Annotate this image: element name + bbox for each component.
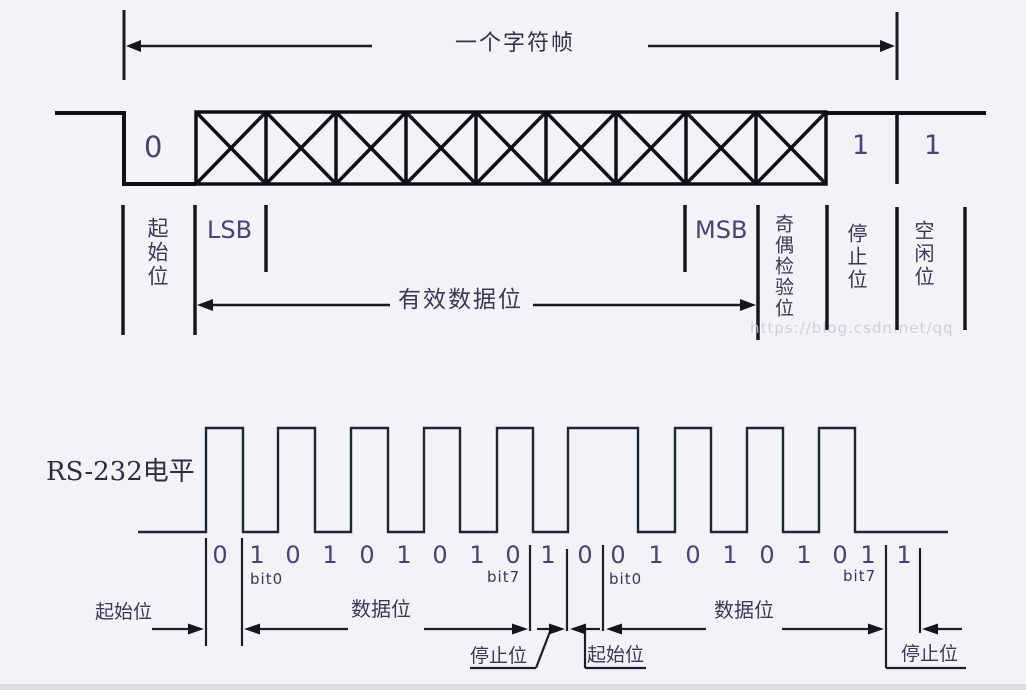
frame1-data-annotation: 数据位: [351, 599, 411, 620]
bit-value: 1: [791, 541, 817, 569]
bit-value: 1: [855, 541, 881, 569]
uart-frame-format-diagram: 一个字符帧 0 1 1 起始位 LSB MSB 奇偶检验位 停止位 空闲位 有效…: [0, 0, 1026, 690]
rs232-level-label: RS-232电平: [46, 459, 195, 486]
data-bit-boxes: [196, 112, 826, 184]
bit-value: 0: [280, 541, 306, 569]
right-arrowhead: [880, 40, 895, 52]
lsb-label: LSB: [207, 218, 252, 243]
idle-bit-field-label: 空闲位: [912, 220, 933, 289]
msb-label: MSB: [695, 218, 747, 243]
bit-value: 1: [535, 541, 561, 569]
bit-index-label: bit7: [843, 567, 876, 585]
frame1-start-annotation: 起始位: [95, 603, 152, 623]
bit-value: 1: [391, 541, 417, 569]
bit-index-label: bit0: [250, 570, 283, 588]
bit-index-label: bit7: [487, 568, 520, 586]
start-bit-value: 0: [144, 132, 162, 162]
bit-value: 0: [754, 541, 780, 569]
bit-value: 0: [572, 541, 598, 569]
bit-value: 0: [207, 541, 233, 569]
annotation-dimension-lines: [152, 629, 966, 668]
bit-value: 1: [891, 541, 917, 569]
data-dim-right-arrowhead: [740, 299, 756, 311]
diagram-linework: [0, 0, 1026, 690]
watermark-text: https://blog.csdn.net/qq: [750, 319, 954, 337]
data-dim-left-arrowhead: [197, 299, 213, 311]
bit-value: 0: [680, 541, 706, 569]
left-arrowhead: [126, 40, 141, 52]
rs232-waveform: [138, 428, 948, 532]
stop-bit-value: 1: [852, 132, 869, 160]
frame2-stop-annotation: 停止位: [901, 645, 958, 665]
data-bits-dimension-label: 有效数据位: [398, 288, 523, 312]
bit-value: 1: [317, 541, 343, 569]
bit-value: 0: [354, 541, 380, 569]
start-bit-field-label: 起始位: [146, 217, 168, 289]
idle-bit-value: 1: [924, 132, 941, 160]
frame-title: 一个字符帧: [455, 32, 575, 55]
bit-value: 0: [427, 541, 453, 569]
frame2-start-annotation: 起始位: [587, 646, 644, 666]
bit-value: 0: [605, 541, 631, 569]
frame2-data-annotation: 数据位: [714, 600, 774, 621]
bit-value: 1: [643, 541, 669, 569]
bit-value: 0: [827, 541, 853, 569]
stop-bit-field-label: 停止位: [845, 223, 866, 292]
parity-bit-field-label: 奇偶检验位: [772, 214, 792, 319]
frame1-stop-annotation: 停止位: [470, 647, 527, 667]
bit-index-label: bit0: [609, 570, 642, 588]
bottom-edge-band: [0, 684, 1026, 690]
bit-value: 1: [244, 541, 270, 569]
bit-value: 1: [717, 541, 743, 569]
bit-value: 0: [500, 541, 526, 569]
bit-value: 1: [464, 541, 490, 569]
